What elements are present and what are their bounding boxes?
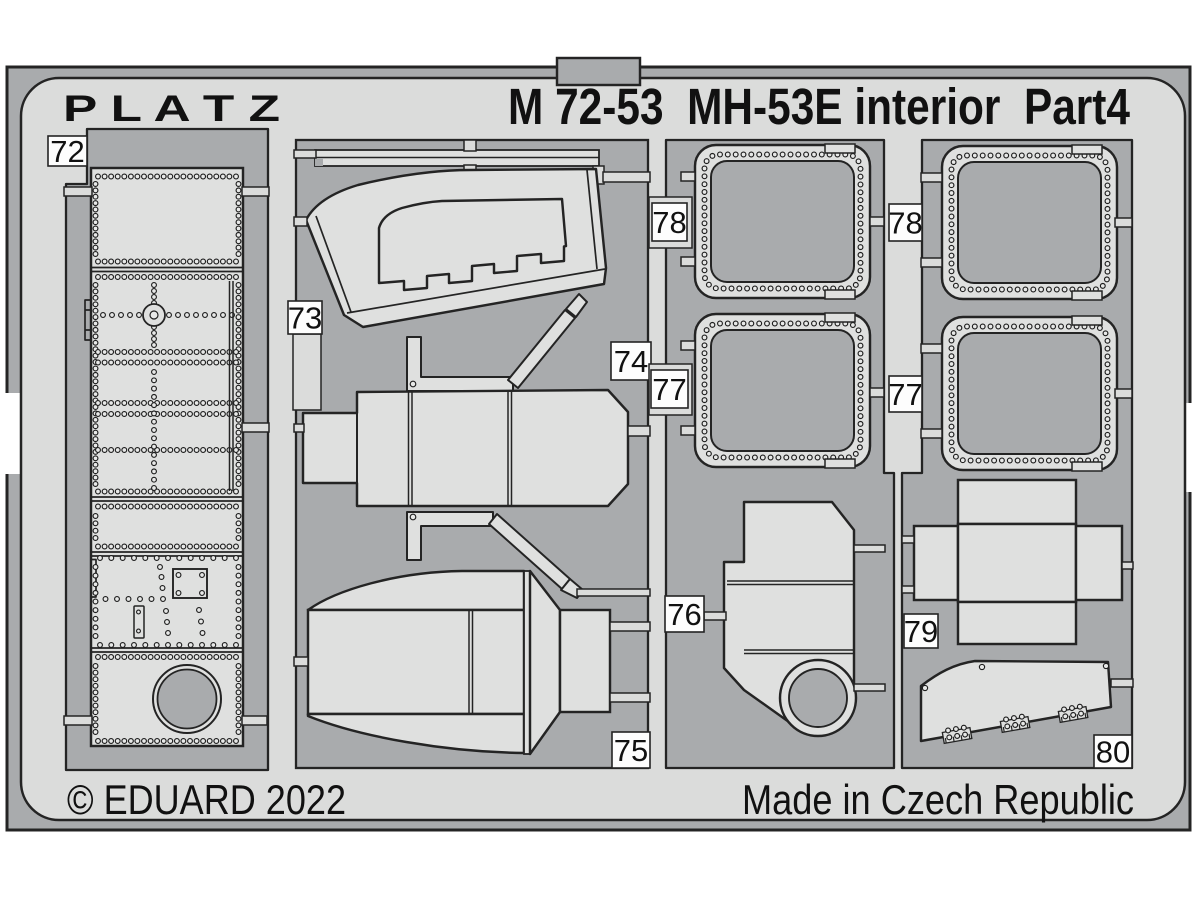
svg-text:M 72-53 MH-53E interior Part: M 72-53 MH-53E interior Part4 — [508, 78, 1131, 135]
svg-text:Made in Czech Republic: Made in Czech Republic — [742, 776, 1134, 823]
svg-text:80: 80 — [1096, 735, 1130, 770]
svg-text:79: 79 — [904, 614, 938, 649]
svg-text:75: 75 — [614, 733, 648, 768]
svg-text:74: 74 — [614, 344, 648, 379]
svg-text:72: 72 — [50, 134, 84, 169]
svg-text:73: 73 — [288, 301, 322, 336]
svg-text:P L A T Z: P L A T Z — [63, 88, 280, 129]
svg-text:© EDUARD 2022: © EDUARD 2022 — [67, 776, 346, 823]
svg-text:78: 78 — [888, 206, 922, 241]
svg-text:78: 78 — [652, 205, 686, 240]
svg-text:76: 76 — [667, 597, 701, 632]
svg-text:77: 77 — [888, 377, 922, 412]
svg-text:77: 77 — [652, 372, 686, 407]
